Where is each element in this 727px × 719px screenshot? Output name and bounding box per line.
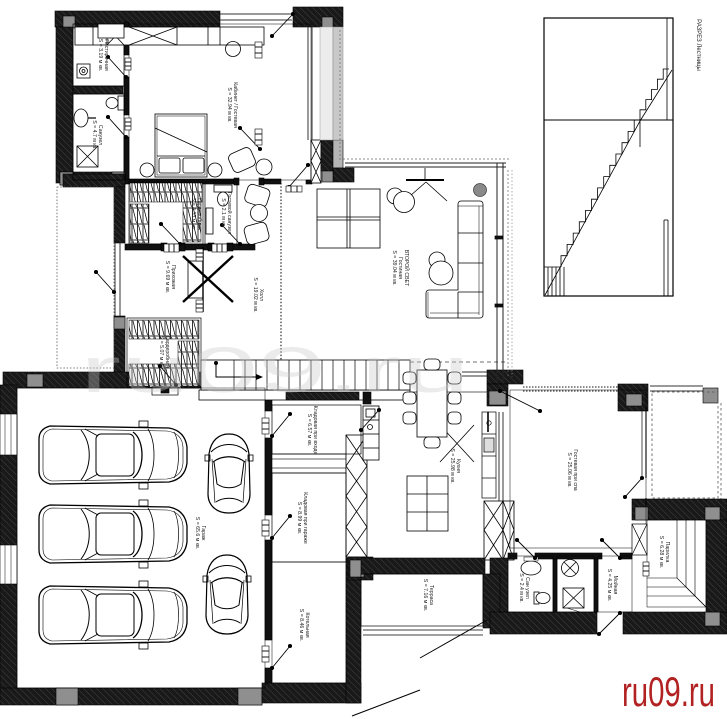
svg-text:Кабинет / ГостеваяS = 32.94 м: Кабинет / ГостеваяS = 32.94 м кв. <box>226 82 238 128</box>
svg-text:ПостирочнаяS = 3.19 м кв.: ПостирочнаяS = 3.19 м кв. <box>97 39 109 71</box>
svg-text:ПрихожаяS = 9.69 м кв.: ПрихожаяS = 9.69 м кв. <box>164 261 176 293</box>
svg-text:Сан узелS = 2.4 м кв.: Сан узелS = 2.4 м кв. <box>518 573 530 603</box>
svg-text:ru09.ru: ru09.ru <box>80 334 470 406</box>
svg-text:ГардеробнаяS = 4.33 м кв.: ГардеробнаяS = 4.33 м кв. <box>190 198 202 230</box>
svg-text:Гостевой санузелS = 2.1 м кв.: Гостевой санузелS = 2.1 м кв. <box>220 192 233 234</box>
svg-text:Гостевая при спаS = 25.06 м кв: Гостевая при спаS = 25.06 м кв. <box>566 449 578 490</box>
svg-text:КотельнаяS = 8.46 м кв.: КотельнаяS = 8.46 м кв. <box>298 609 310 641</box>
svg-text:ru09.ru: ru09.ru <box>622 668 715 715</box>
svg-text:РАЗРЕЗ Лестницы: РАЗРЕЗ Лестницы <box>695 19 701 71</box>
